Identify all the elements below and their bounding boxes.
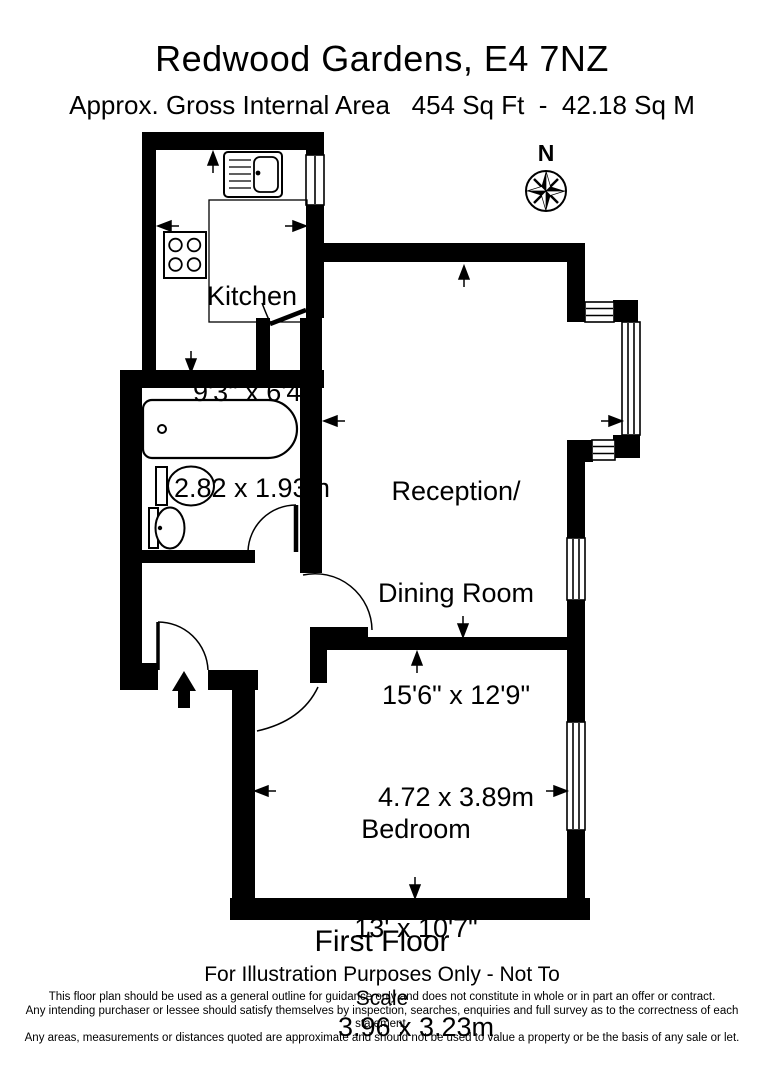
sink-icon (224, 152, 282, 197)
entrance-door (158, 622, 208, 670)
bedroom-name: Bedroom (338, 813, 494, 846)
reception-name-line2: Dining Room (378, 576, 534, 610)
kitchen-name: Kitchen (174, 280, 330, 312)
floor-name: First Floor (315, 925, 450, 959)
kitchen-room-label: Kitchen 9'3" x 6'4" 2.82 x 1.93m (174, 216, 330, 568)
window-bay-top (585, 302, 614, 322)
compass-north-label: N (538, 140, 555, 167)
kitchen-arrow-up (208, 152, 218, 173)
reception-name-line1: Reception/ (378, 474, 534, 508)
reception-arrow-right (601, 416, 622, 426)
window-kitchen (306, 155, 324, 205)
window-bay-front (622, 322, 640, 435)
page-subtitle: Approx. Gross Internal Area 454 Sq Ft - … (69, 90, 695, 121)
legal-line: Any areas, measurements or distances quo… (0, 1032, 764, 1046)
window-bedroom-right (567, 722, 585, 830)
window-bay-bottom (592, 440, 615, 460)
page-title: Redwood Gardens, E4 7NZ (155, 38, 609, 80)
reception-door (303, 574, 372, 630)
compass-icon (526, 171, 566, 211)
legal-disclaimer: This floor plan should be used as a gene… (0, 991, 764, 1045)
reception-arrow-up (459, 266, 469, 287)
window-reception-right (567, 538, 585, 600)
kitchen-imperial-dimensions: 9'3" x 6'4" (174, 376, 330, 408)
reception-imperial-dimensions: 15'6" x 12'9" (378, 678, 534, 712)
bedroom-arrow-right (546, 786, 567, 796)
legal-line: This floor plan should be used as a gene… (0, 991, 764, 1005)
legal-line: Any intending purchaser or lessee should… (0, 1005, 764, 1032)
entrance-arrow-icon (172, 671, 196, 708)
bedroom-door (257, 687, 318, 731)
kitchen-metric-dimensions: 2.82 x 1.93m (174, 472, 330, 504)
bedroom-arrow-left (255, 786, 276, 796)
floorplan-page: Redwood Gardens, E4 7NZ Approx. Gross In… (0, 0, 764, 1080)
